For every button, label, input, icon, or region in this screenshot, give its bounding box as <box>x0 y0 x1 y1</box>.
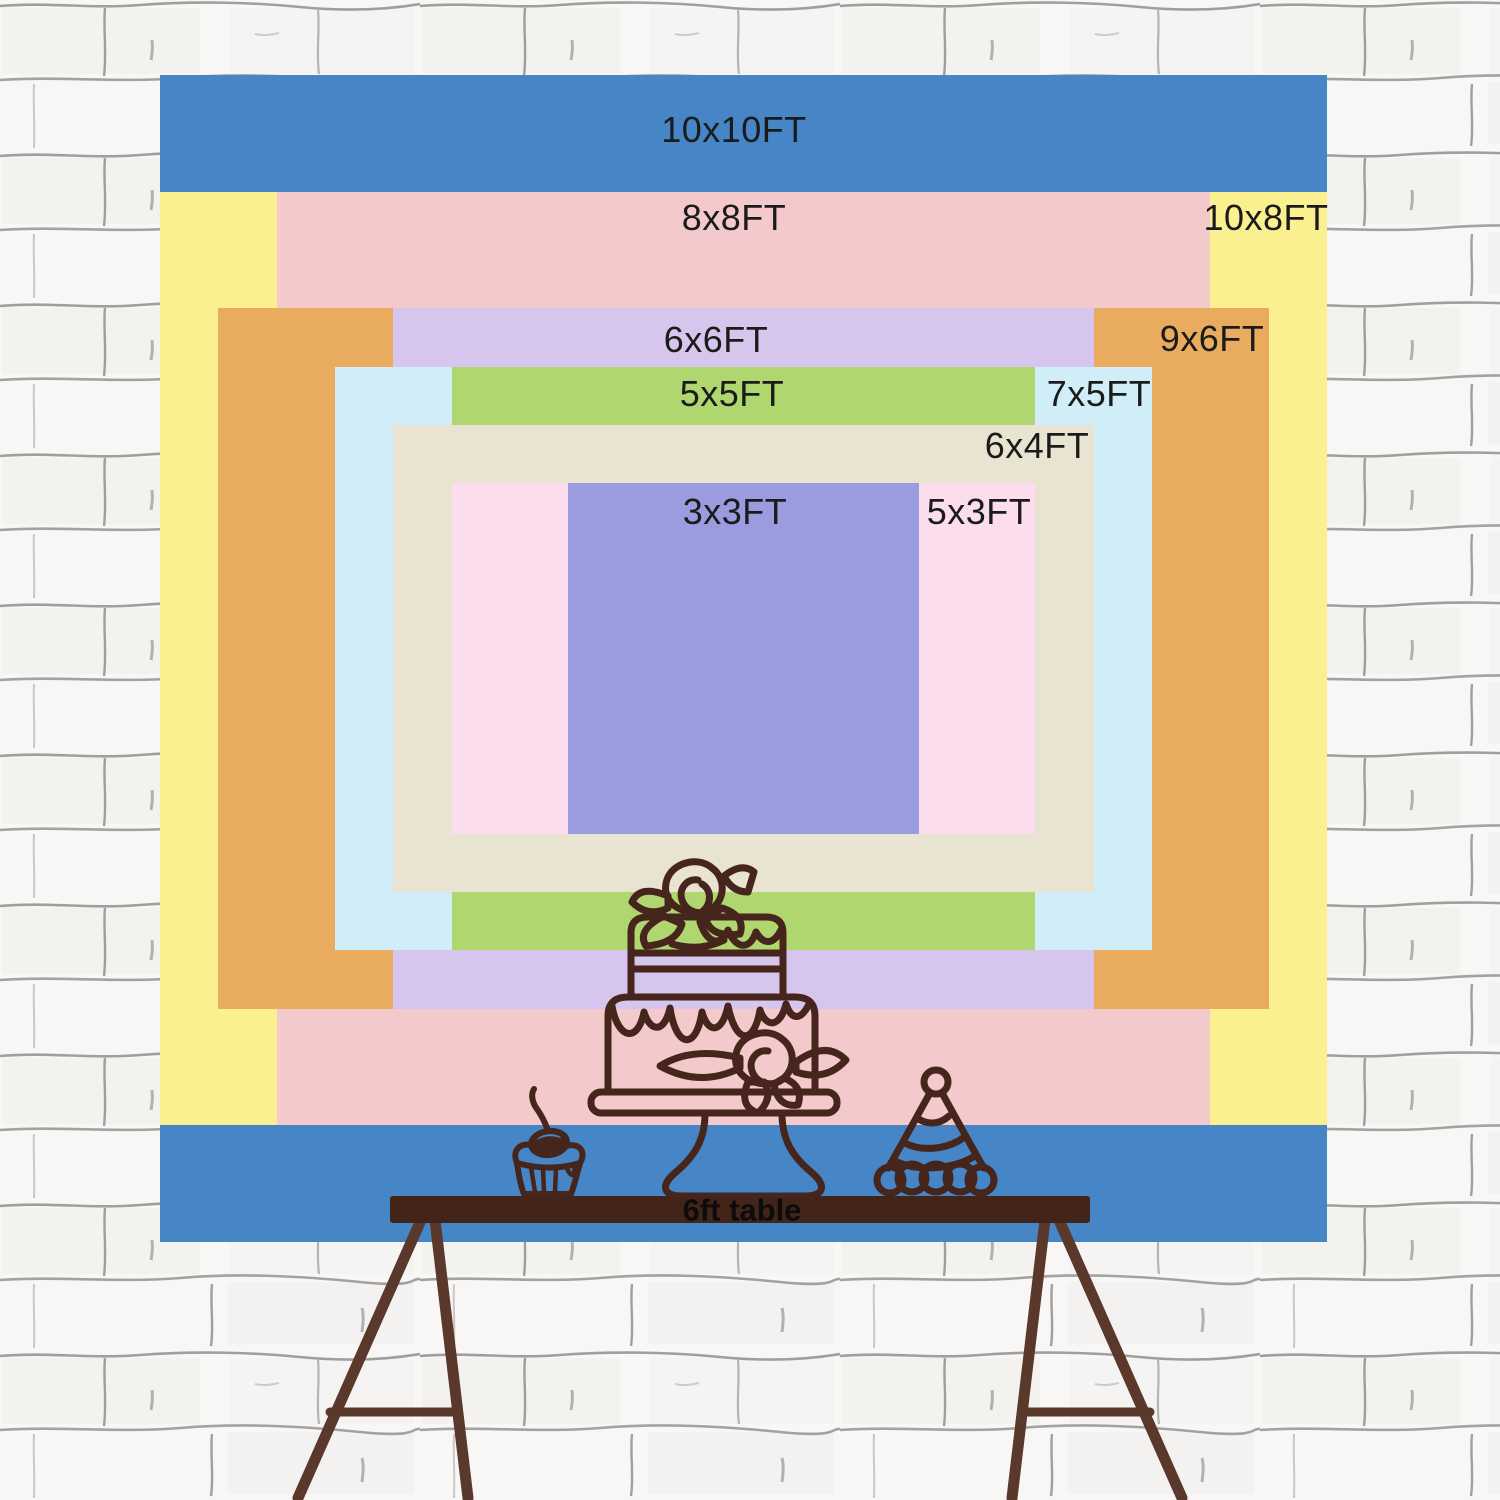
backdrop-layer-3x3 <box>568 483 918 833</box>
backdrop-size-chart <box>160 75 1327 1242</box>
table-size-label: 6ft table <box>683 1195 802 1226</box>
size-chart-scene: 10x10FT10x8FT8x8FT9x6FT6x6FT7x5FT5x5FT6x… <box>0 0 1500 1500</box>
